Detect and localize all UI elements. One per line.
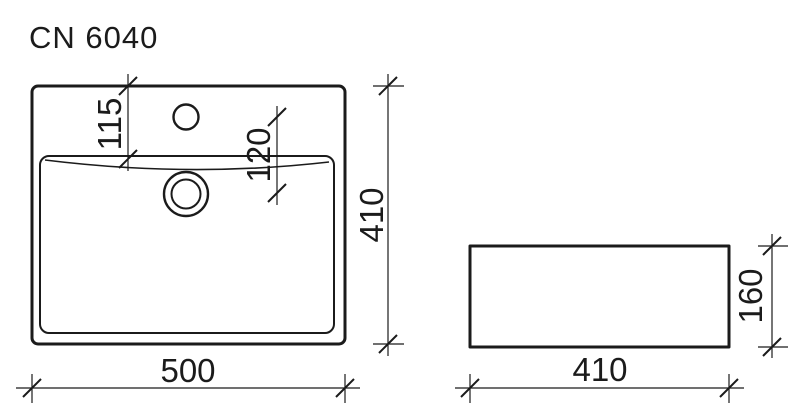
drawing-linework xyxy=(0,0,800,419)
drain-inner-circle xyxy=(172,180,201,209)
dim-label-faucet-to-drain: 120 xyxy=(242,95,276,215)
faucet-hole-circle xyxy=(174,105,199,130)
side-profile-outline xyxy=(470,246,729,347)
model-number-title: CN 6040 xyxy=(29,22,158,54)
dim-label-side-view-height: 160 xyxy=(734,236,768,356)
dim-label-top-view-depth: 410 xyxy=(355,155,389,275)
dim-label-top-view-width: 500 xyxy=(128,354,248,388)
bowl-rim-curve xyxy=(45,160,329,170)
dim-label-faucet-offset: 115 xyxy=(93,64,127,184)
technical-drawing-sheet: CN 6040 115 120 410 500 160 410 xyxy=(0,0,800,419)
basin-bowl-outline xyxy=(40,156,334,333)
dim-label-side-view-width: 410 xyxy=(540,353,660,387)
